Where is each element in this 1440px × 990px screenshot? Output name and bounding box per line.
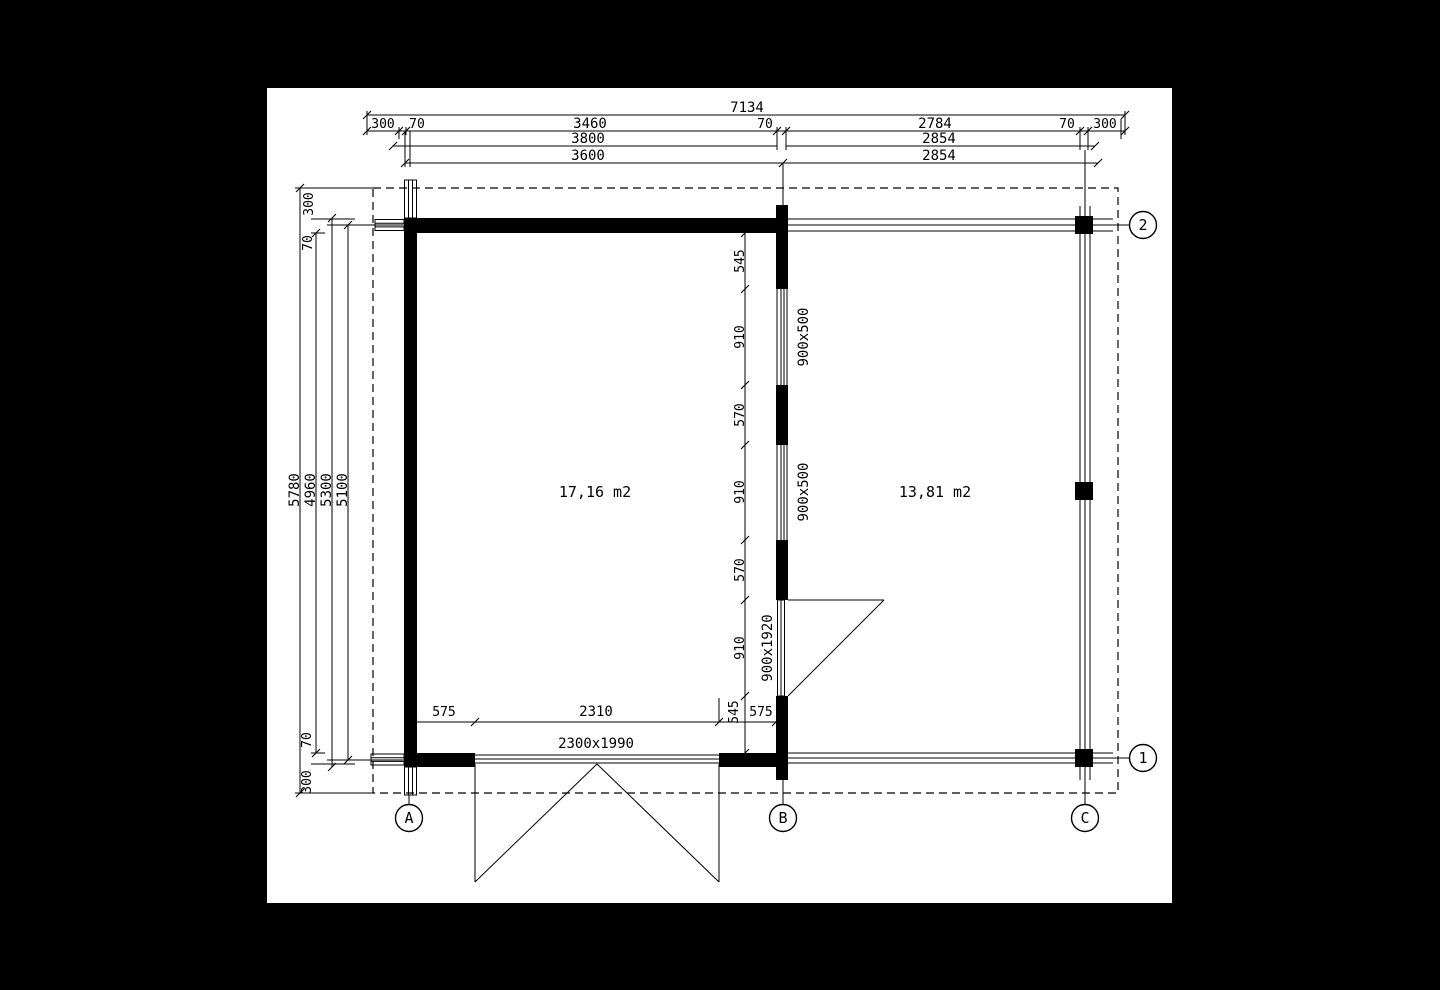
dim-left: 5780 (287, 473, 303, 507)
dim-chain: 545 (727, 700, 742, 723)
dim-label: 2854 (922, 131, 956, 147)
dim-label: 2854 (922, 148, 956, 164)
stub-a-bottom-vertical (405, 767, 417, 795)
door-swing-right (597, 764, 719, 882)
dim-chain: 545 (733, 249, 748, 272)
dim-chain: 575 (432, 705, 455, 720)
stub-b-bottom (776, 767, 788, 780)
window-top-glazing (777, 289, 787, 385)
dim-label: 2784 (918, 116, 952, 132)
axis-label-1: 1 (1138, 749, 1147, 767)
wall-c-log-wall (1075, 206, 1093, 780)
exterior-double-door (475, 755, 719, 882)
dim-label: 300 (1093, 117, 1116, 132)
dim-chain: 2310 (579, 704, 613, 720)
dim-chain: 910 (733, 480, 748, 503)
dim-label: 3460 (573, 116, 607, 132)
dim-left-bottom: 70 (300, 732, 315, 748)
window-mid-label: 900x500 (796, 462, 812, 521)
dim-ticks-top (363, 111, 1129, 167)
wall-b-segment (776, 540, 788, 600)
dim-left: 4960 (303, 473, 319, 507)
exterior-door-label: 2300x1990 (558, 736, 634, 752)
wall-c-post-bottom (1075, 749, 1093, 767)
wall-b (776, 205, 884, 780)
wall-top-b-c (788, 219, 1113, 231)
axis-label-c: C (1080, 809, 1089, 827)
floor-plan-drawing: 7134 300 70 3460 70 2784 70 300 3800 285… (267, 88, 1172, 903)
dim-label: 70 (757, 117, 773, 132)
dim-chain: 570 (733, 558, 748, 581)
dim-chain: 910 (733, 325, 748, 348)
dim-left-top: 300 (302, 192, 317, 215)
dim-left: 5100 (335, 473, 351, 507)
window-mid-glazing (777, 445, 787, 540)
room-area-label-left: 17,16 m2 (559, 483, 631, 501)
dim-label: 70 (1059, 117, 1075, 132)
axis-label-a: A (404, 809, 413, 827)
dim-label: 3600 (571, 148, 605, 164)
dim-label: 3800 (571, 131, 605, 147)
dim-chain: 910 (733, 636, 748, 659)
window-top-label: 900x500 (796, 307, 812, 366)
wall-c-post-mid (1075, 482, 1093, 500)
axis-label-b: B (778, 809, 787, 827)
stub-a-top-vertical (405, 180, 417, 218)
dim-left-top: 70 (301, 235, 316, 251)
wall-top-a-b (404, 218, 788, 233)
dim-top-total: 7134 (730, 100, 764, 116)
dim-label: 300 (371, 117, 394, 132)
room-area-label-right: 13,81 m2 (899, 483, 971, 501)
dim-label: 70 (409, 117, 425, 132)
interior-door-label: 900x1920 (760, 614, 776, 681)
dim-chain: 575 (749, 705, 772, 720)
wall-b-dimension-chain: 545 910 570 910 570 910 545 (727, 229, 749, 757)
axis-label-2: 2 (1138, 216, 1147, 234)
wall-a (404, 218, 417, 767)
left-dimensions: 5780 4960 5300 5100 300 70 70 300 (287, 184, 403, 797)
interior-door (778, 600, 885, 696)
dim-left-bottom: 300 (300, 770, 315, 793)
stub-b-top (776, 205, 788, 218)
door-swing-left (475, 764, 597, 882)
wall-b-segment (776, 385, 788, 445)
wall-bottom-b-c (788, 753, 1113, 763)
top-dimensions: 7134 300 70 3460 70 2784 70 300 3800 285… (363, 100, 1129, 206)
wall-bottom-left-pier (404, 753, 475, 767)
bottom-dimension-chain: 575 2310 575 (409, 698, 780, 726)
dim-chain: 570 (733, 403, 748, 426)
dim-left: 5300 (319, 473, 335, 507)
floor-plan-canvas: 7134 300 70 3460 70 2784 70 300 3800 285… (267, 88, 1172, 903)
